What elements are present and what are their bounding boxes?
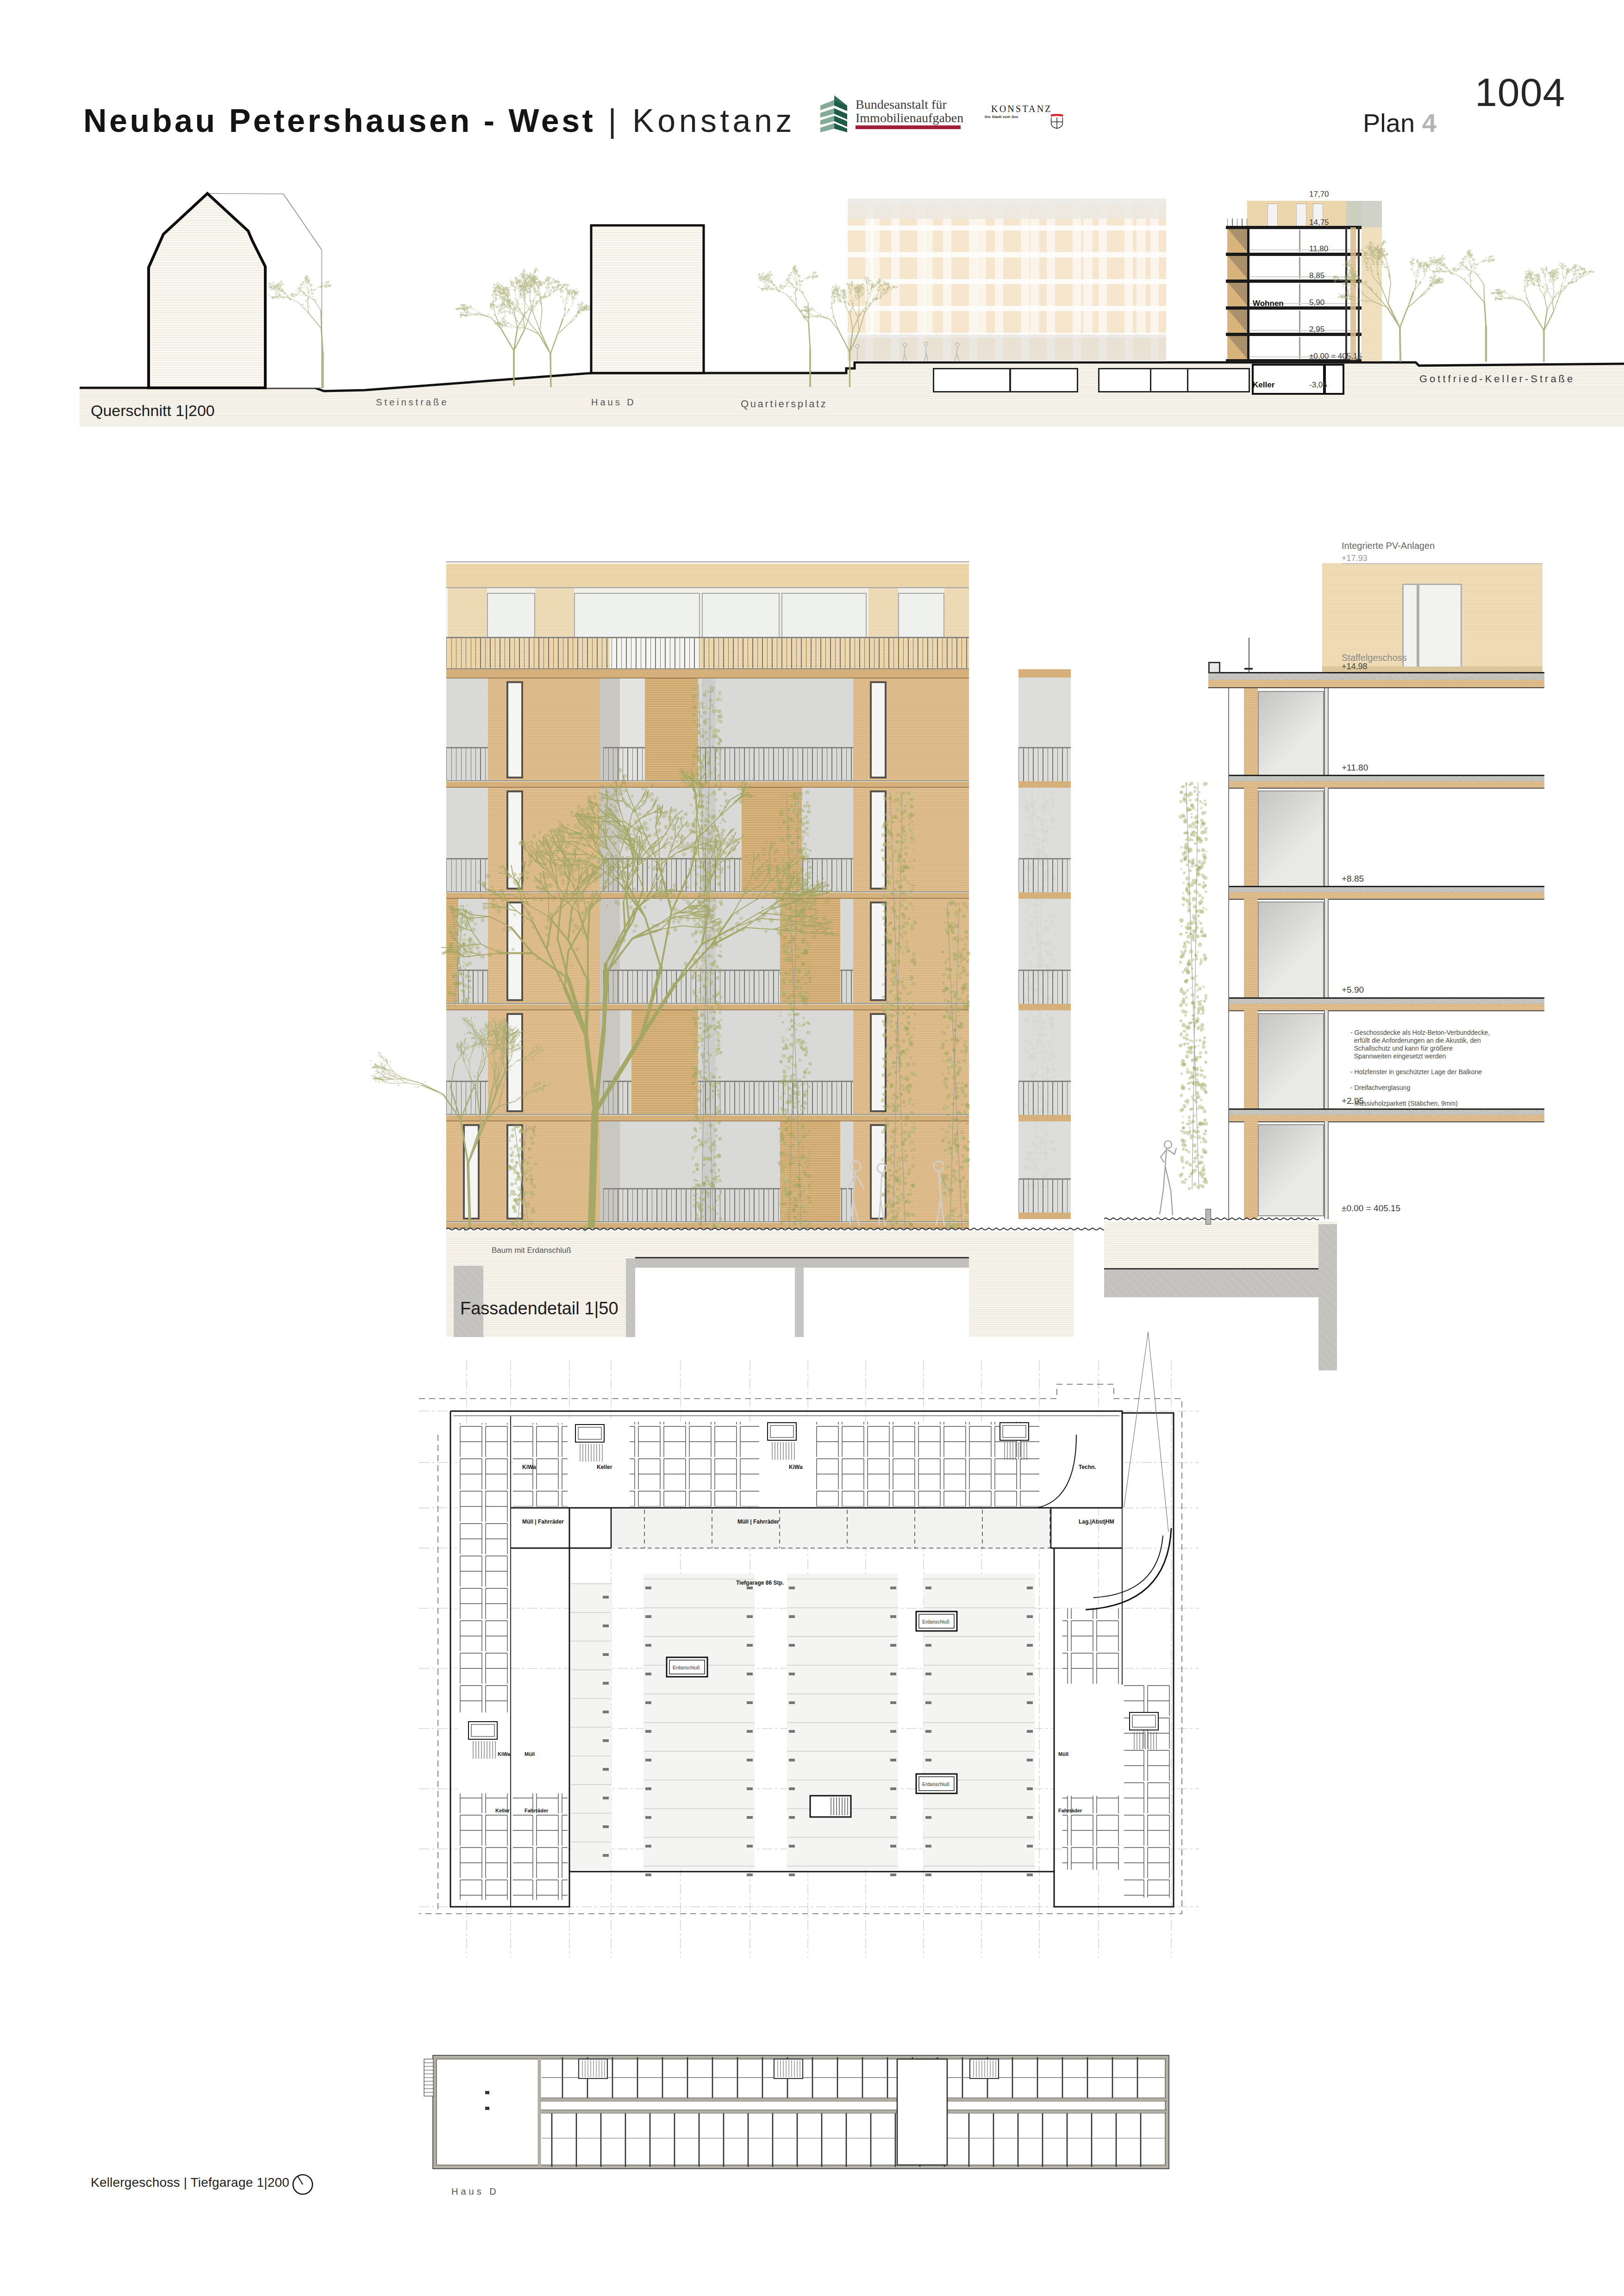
svg-text:Lag.|Abst|HM: Lag.|Abst|HM	[1079, 1518, 1114, 1525]
svg-text:Müll | Fahrräder: Müll | Fahrräder	[522, 1518, 564, 1525]
svg-text:Techn.: Techn.	[1079, 1464, 1096, 1470]
svg-text:Erdanschluß: Erdanschluß	[673, 1665, 700, 1670]
svg-text:Erdanschluß: Erdanschluß	[922, 1619, 949, 1624]
svg-text:Müll: Müll	[1058, 1751, 1068, 1757]
svg-text:Tiefgarage 86 Stp.: Tiefgarage 86 Stp.	[736, 1580, 784, 1586]
svg-text:Fahrräder: Fahrräder	[1058, 1808, 1082, 1813]
svg-text:Keller: Keller	[495, 1808, 510, 1813]
svg-text:Erdanschluß: Erdanschluß	[922, 1781, 949, 1787]
svg-text:Müll: Müll	[525, 1751, 535, 1757]
svg-text:KiWa: KiWa	[789, 1464, 803, 1470]
svg-text:Müll | Fahrräder: Müll | Fahrräder	[737, 1518, 779, 1525]
svg-text:Keller: Keller	[597, 1464, 612, 1470]
svg-text:Fahrräder: Fahrräder	[525, 1808, 549, 1813]
svg-text:Haus D: Haus D	[451, 2186, 499, 2196]
svg-text:KiWa: KiWa	[522, 1464, 536, 1470]
svg-text:KiWa: KiWa	[498, 1751, 511, 1757]
